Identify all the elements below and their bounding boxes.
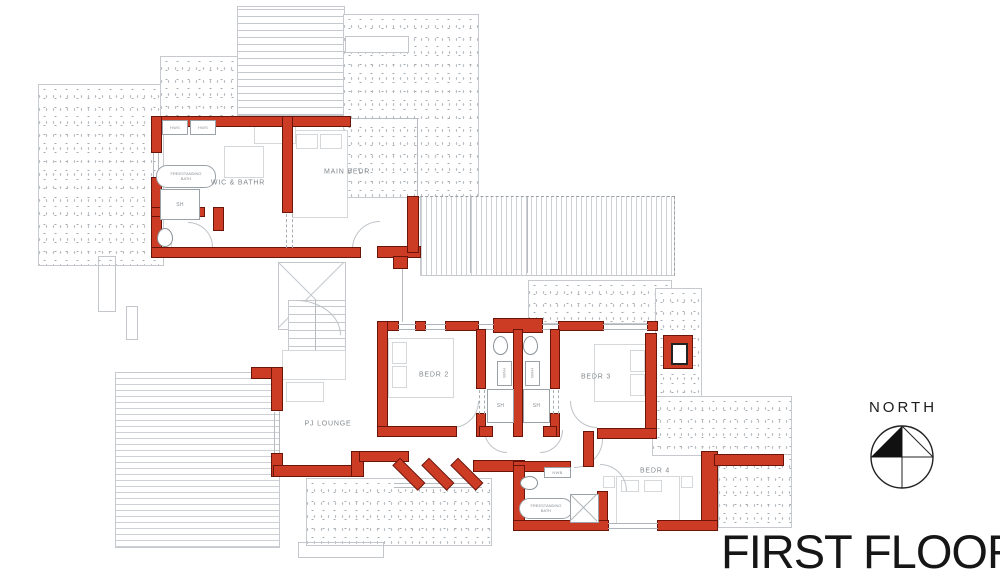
roof-stipple-upper-mid [160,56,240,120]
roof-stipple-bottom-band [306,478,492,546]
wall-segment [214,208,223,230]
roof-stipple-top-left [38,84,164,266]
pillow [392,366,407,388]
wall-segment [378,427,456,436]
door-arc [600,464,627,491]
wall-segment [514,330,522,436]
gray-wall-connector [402,268,403,322]
wic-island [224,146,264,178]
basin-box: HWB [525,361,540,386]
room-label-bedr3: BEDR 3 [581,374,611,381]
wall-segment [152,117,161,152]
room-label-wic-bathr: WIC & BATHR [211,180,265,187]
wall-segment [152,248,360,257]
wall-segment [646,334,656,438]
window [608,523,658,529]
door-arc [452,401,479,428]
window [425,324,446,330]
wall-segment [551,330,559,388]
gray-wall-top [349,118,419,119]
wall-segment [446,322,478,330]
freestanding-bath: FREESTANDING BATH [156,165,216,188]
toilet [493,336,508,355]
chimney-flue [671,343,688,365]
room-label-bedr2: BEDR 2 [419,372,449,379]
wall-segment [658,521,717,530]
roof-outline-bottom-step [298,542,384,558]
basin-box: HWB [544,467,571,478]
cavity-slider-door [286,214,293,248]
roof-notch-top-right [345,36,409,53]
wall-segment [648,322,657,330]
hws-label: HWS [170,125,180,130]
window-dashed [479,390,485,414]
sheet-title: FIRST FLOOR [721,524,1000,569]
basin-box: HWB [497,361,512,386]
hwb-label: HWB [502,368,507,378]
wall-segment [408,197,418,252]
shower-label: SH [176,202,184,208]
window [603,324,648,330]
hwb-label: HWB [530,368,535,378]
north-label: NORTH [860,399,946,416]
wall-segment [394,257,407,268]
pillow [644,480,662,492]
roof-stipple-bedr4-east [718,454,792,528]
shower: SH [487,389,514,423]
wall-segment [416,322,425,330]
door-arc [188,222,213,247]
bath-label: FREESTANDING BATH [530,504,561,513]
window-line [279,412,280,456]
gray-wall-right-upper [417,118,418,198]
deck-boards-southwest [115,372,280,548]
wall-segment [598,492,607,524]
wall-segment [477,330,485,388]
pergola-slats-top [237,6,345,116]
wall-segment [715,455,783,465]
deck-divider-line [470,197,471,273]
deck-divider-line [527,197,528,273]
louvre-guide-line [394,487,482,488]
roof-outline-step-left [98,256,116,312]
shower-label: SH [533,403,541,409]
window-dashed [553,390,559,414]
roof-stipple-below-deck [528,280,672,324]
room-label-main-bedr: MAIN BEDR [324,169,370,176]
bedside-table [681,476,693,488]
room-label-bedr4: BEDR 4 [640,468,670,475]
freestanding-bath: FREESTANDING BATH [519,498,573,519]
roof-stipple-right-lower [652,396,792,456]
pillow [392,342,407,364]
compass-icon [869,424,935,490]
wall-segment [274,466,362,476]
window-line [274,412,275,456]
wall-segment [272,368,282,410]
door-arc [352,221,380,249]
wall-segment [559,322,603,330]
toilet [157,228,173,247]
pj-lounge-cabinet-2 [286,382,324,402]
bath-label: FREESTANDING BATH [170,172,201,181]
door-arc [570,401,597,428]
hwb-label: HWB [552,470,562,475]
toilet [523,336,538,355]
pillow [630,350,645,372]
hot-water-system-box: HWS [190,120,216,135]
wall-segment [584,432,593,466]
floor-plan-canvas: HWS HWS FREESTANDING BATH SH HWB HWB SH … [0,0,1000,569]
hot-water-system-box: HWS [162,120,188,135]
hws-label: HWS [198,125,208,130]
wall-segment [598,429,656,438]
room-label-pj-lounge: PJ LOUNGE [305,421,352,428]
roof-outline-step-left-2 [126,306,138,340]
shower: SH [523,389,550,423]
toilet [520,476,538,490]
wall-segment [544,427,556,436]
wall-segment [480,427,492,436]
pillow [630,374,645,396]
shower: SH [160,189,200,220]
wall-segment [283,117,292,212]
window [398,324,416,330]
pillow [296,134,318,149]
pillow [320,134,342,149]
shower-x-lines [570,494,597,521]
pj-lounge-cabinet [282,350,346,380]
deck-boards-east [420,196,675,276]
window-line [153,152,154,178]
shower-label: SH [497,403,505,409]
wall-segment [378,322,387,436]
